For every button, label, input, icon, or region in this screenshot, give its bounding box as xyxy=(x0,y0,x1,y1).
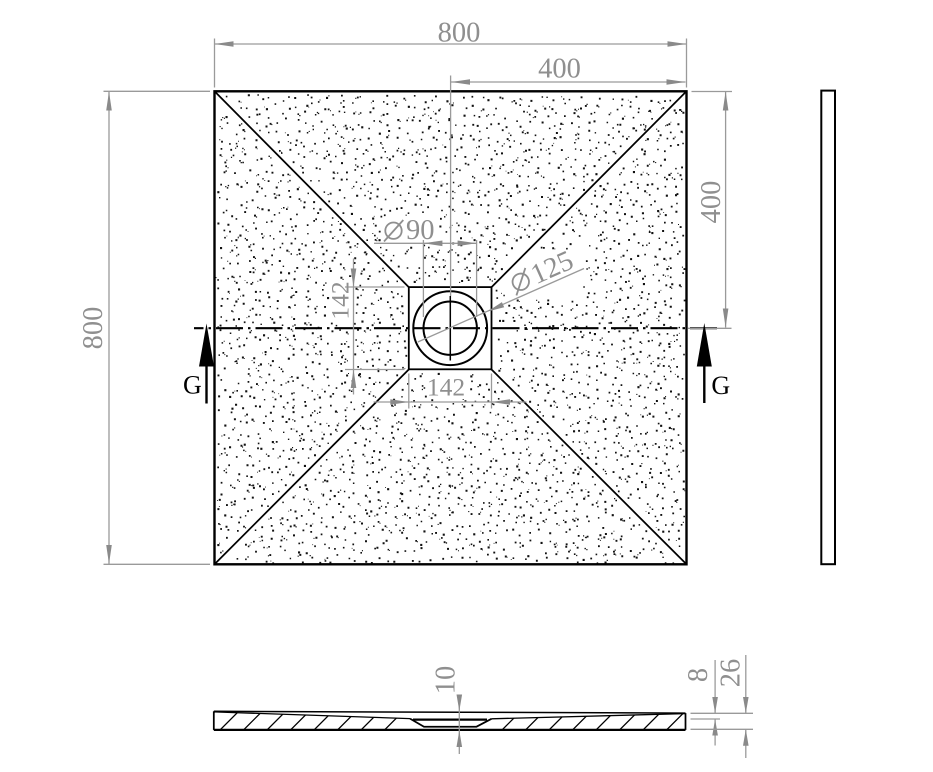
svg-text:G: G xyxy=(711,371,730,400)
svg-text:10: 10 xyxy=(431,666,462,695)
svg-text:90: 90 xyxy=(406,215,435,246)
svg-text:800: 800 xyxy=(438,18,481,49)
svg-text:400: 400 xyxy=(538,54,581,85)
svg-text:800: 800 xyxy=(78,307,109,350)
svg-text:8: 8 xyxy=(683,668,714,682)
svg-text:G: G xyxy=(183,371,202,400)
svg-text:142: 142 xyxy=(326,281,355,319)
svg-text:400: 400 xyxy=(696,181,727,224)
svg-text:26: 26 xyxy=(716,659,747,688)
svg-text:142: 142 xyxy=(427,373,465,402)
